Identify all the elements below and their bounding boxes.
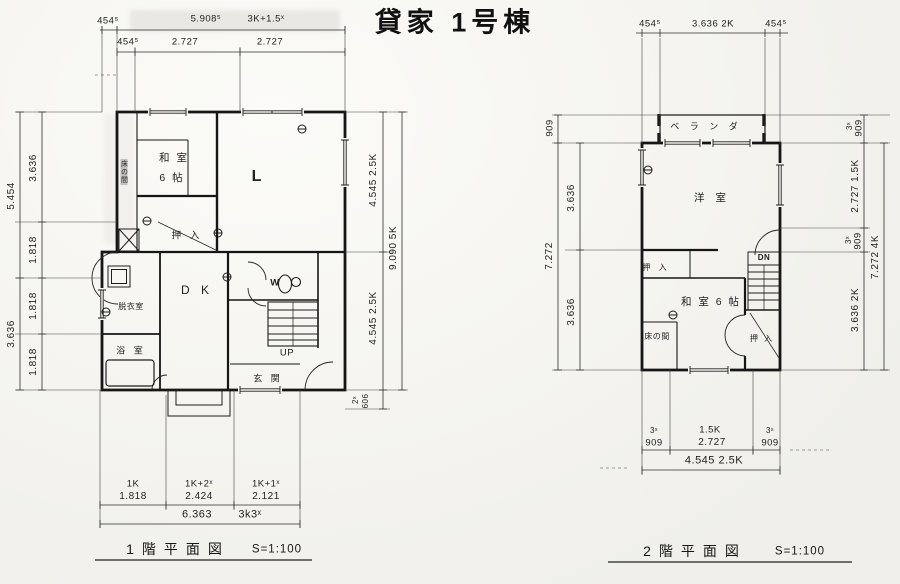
dim-label: 3ˣ	[766, 427, 774, 435]
door-arc-icon	[92, 252, 333, 390]
dim-label: 909	[545, 119, 555, 136]
dim-label: 3.636	[7, 320, 17, 348]
dim-label: 4.545 2.5K	[369, 153, 379, 206]
floor-plan-sheet: 貸家 1号棟 454⁵ 5.908⁵ 3K+1.5ˣ 454⁵ 2.727 2.…	[0, 0, 900, 584]
plan-title: 貸家 1号棟	[375, 10, 536, 37]
dim-label: 2ˣ	[352, 396, 360, 404]
dim-label: 4.545 2.5K	[685, 456, 743, 467]
room-label-tokonoma2: 床の間	[644, 333, 670, 341]
dim-label: 454⁵	[765, 19, 787, 29]
room-label-western: 洋 室	[694, 193, 730, 204]
floor2-scale: S=1:100	[775, 546, 825, 558]
dim-label: 1K+1ˣ	[252, 479, 280, 489]
dim-label: 3.636 2K	[692, 19, 734, 29]
dim-label: 1.5K	[699, 425, 721, 435]
room-label-oshiire-right: 押 入	[750, 335, 774, 343]
room-label-bath: 浴 室	[116, 347, 146, 356]
dim-label: 3.636	[567, 184, 577, 212]
floor1-scale: S=1:100	[252, 544, 302, 556]
floor1-dim-lines	[15, 26, 408, 528]
dim-label: 5.454	[7, 182, 17, 210]
dim-label: 3K+1.5ˣ	[248, 14, 285, 24]
room-label-washitsu: 和 室	[159, 153, 189, 164]
dim-label: 1K	[127, 479, 140, 489]
room-label-veranda: ベ ラ ン ダ	[670, 123, 742, 132]
dim-label: 2.727	[698, 438, 726, 448]
toilet-icon	[279, 275, 301, 293]
floor2-caption: 2階平面図	[643, 544, 747, 558]
stairs-up-icon	[268, 302, 318, 346]
room-label-living: L	[252, 169, 263, 185]
room-label-wc: W	[270, 278, 279, 288]
dim-label: 2.727	[172, 37, 198, 47]
dim-label: 1K+2ˣ	[185, 479, 213, 489]
floor2-dim-lines	[552, 38, 890, 475]
dim-label: 909	[761, 438, 778, 448]
room-label-tokonoma-strip: 床の間	[121, 159, 128, 185]
dim-label: 3.636 2K	[851, 288, 861, 332]
room-label-dk: D K	[181, 284, 213, 296]
fixture-icon	[644, 166, 677, 319]
dim-label: 4.545 2.5K	[369, 291, 379, 344]
room-label-oshiire-left: 押 入	[642, 264, 669, 272]
dim-label: 5.908⁵	[191, 14, 222, 24]
dim-label: 2.727 1.5K	[851, 159, 861, 212]
dim-label: 3.636	[567, 298, 577, 326]
room-label-washitsu2: 和 室 6 帖	[681, 297, 741, 308]
dim-label: 606	[362, 394, 370, 409]
dim-label: 454⁵	[97, 16, 119, 26]
room-label-oshiire: 押 入	[172, 231, 203, 241]
dim-label: 2.727	[257, 37, 283, 47]
dim-label: 454⁵	[639, 19, 661, 29]
stairs-up-label: UP	[280, 348, 294, 358]
room-label-entrance: 玄 関	[253, 375, 283, 384]
dim-label: 6.363	[182, 510, 212, 521]
dim-label: 909	[853, 232, 863, 249]
dim-label: 454⁵	[117, 37, 139, 47]
floor1-dim-lines	[16, 26, 406, 528]
dim-label: 2.121	[252, 492, 280, 502]
dim-label: 909	[854, 119, 864, 136]
dim-label: 1.818	[119, 492, 147, 502]
floor1-caption: 1階平面図	[126, 542, 230, 556]
stairs-down-label: DN	[758, 254, 771, 262]
dim-label: 2.424	[185, 492, 213, 502]
dim-label: 1.818	[29, 236, 39, 264]
room-label-washitsu-size: 6 帖	[159, 173, 184, 184]
dim-label: 3k3ˣ	[238, 510, 261, 521]
crossbox-icon	[119, 229, 139, 251]
dim-label: 1.818	[29, 348, 39, 376]
dim-label: 7.272	[545, 242, 555, 270]
dim-label: 7.272 4K	[871, 235, 881, 279]
dim-label: 909	[645, 438, 662, 448]
bathtub-icon	[106, 360, 154, 386]
dim-label: 3.636	[29, 154, 39, 182]
porch-steps	[168, 390, 230, 416]
washer-icon	[108, 266, 130, 287]
dim-label: 3ˣ	[650, 427, 658, 435]
dim-label: 1.818	[29, 292, 39, 320]
floor2-dim-lines	[554, 29, 888, 474]
dim-label: 9.090 5K	[389, 226, 399, 270]
room-label-dressing: 脱衣室	[118, 303, 144, 311]
